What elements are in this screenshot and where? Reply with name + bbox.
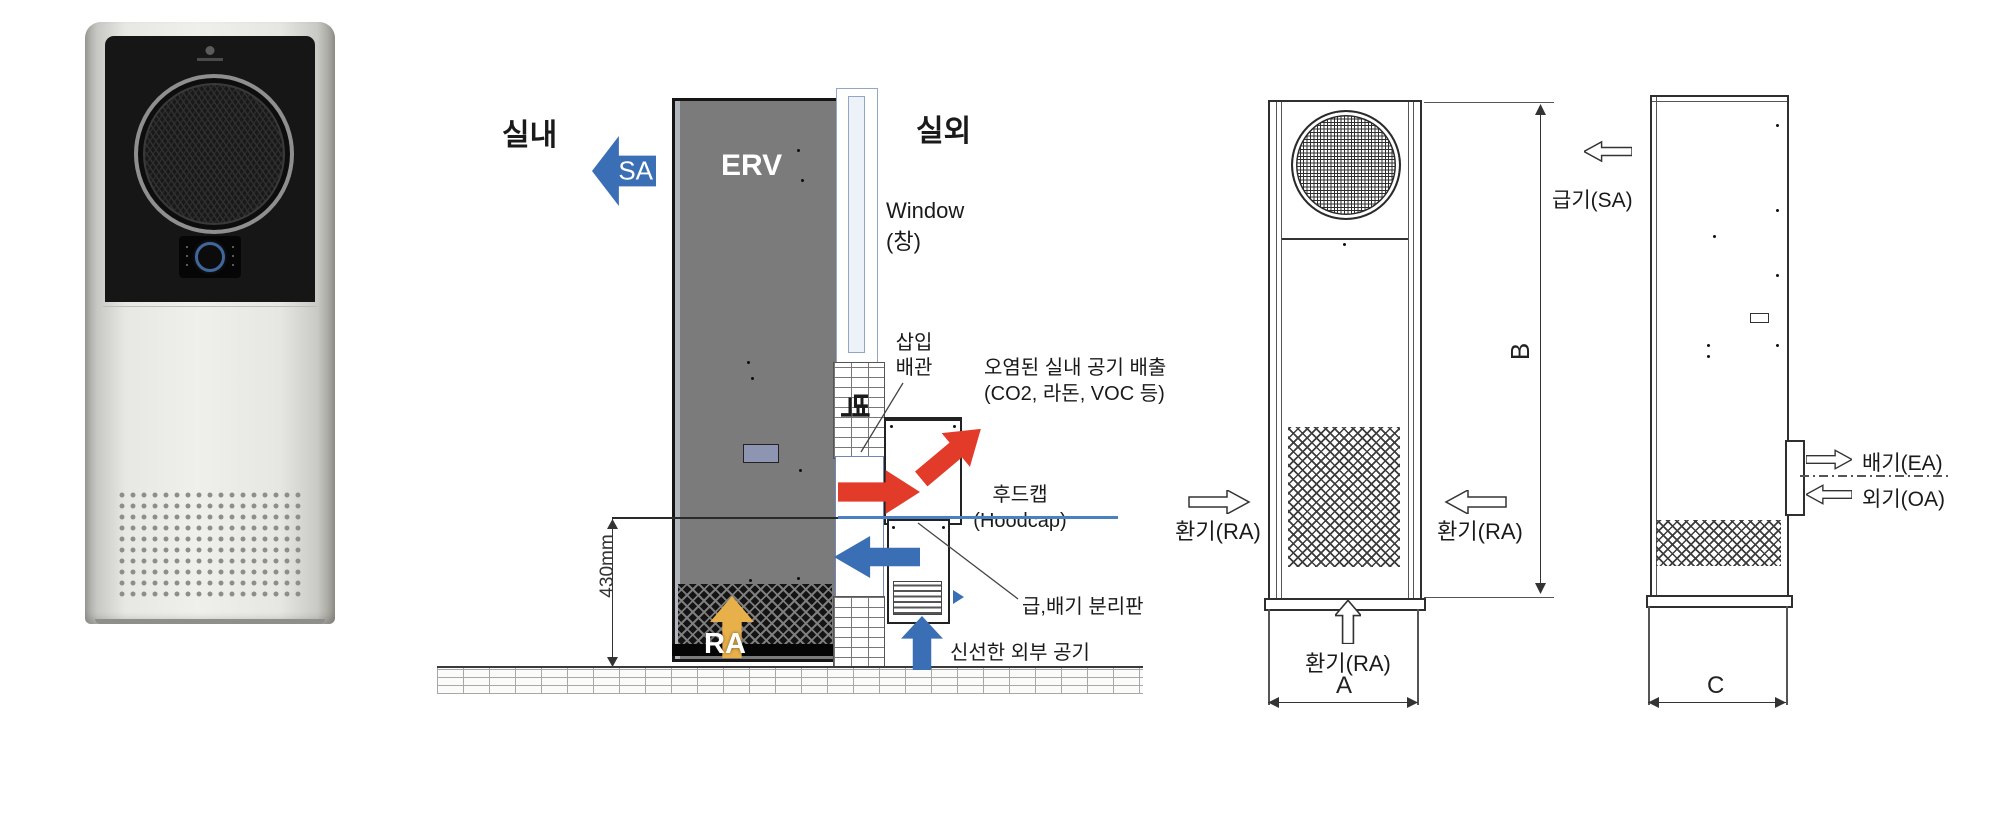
sv-dot-6: [1707, 355, 1710, 358]
sa-side-label: 급기(SA): [1552, 184, 1633, 214]
front-view-unit: [1268, 100, 1422, 602]
dim-c-arrow-left-icon: [1648, 697, 1659, 708]
exhaust-arrow-horizontal: [838, 470, 920, 514]
intake-tick-icon: [953, 590, 964, 604]
fv-screw-dot: [1343, 243, 1346, 246]
hoodcap-label-line2: (Hoodcap): [968, 508, 1072, 534]
outdoor-label: 실외: [916, 106, 971, 150]
ra-right-label: 환기(RA): [1430, 514, 1530, 546]
intake-arrow-left: [834, 536, 920, 578]
hood-intake-grille: [893, 581, 942, 615]
exhaust-note-line1: 오염된 실내 공기 배출: [984, 355, 1166, 381]
return-air-arrow-label: RA: [704, 628, 746, 661]
window-label-en: Window: [886, 198, 964, 224]
erv-left-trim: [675, 101, 680, 659]
dim-b-line: [1540, 106, 1541, 592]
dim-b-label: B: [1505, 343, 1536, 360]
dim-c-arrow-right-icon: [1775, 697, 1786, 708]
side-view-unit: [1650, 95, 1789, 599]
wall-brick-lower: [833, 596, 885, 669]
window-label-kr: (창): [886, 224, 964, 256]
fresh-air-arrow-up: [901, 616, 943, 670]
fv-channel-l2: [1281, 102, 1282, 600]
sv-dot-7: [1776, 344, 1779, 347]
floor: [437, 666, 1143, 694]
ea-label: 배기(EA): [1862, 447, 1943, 477]
insert-pipe-label: 삽입 배관: [886, 331, 942, 381]
hoodcap-label: 후드캡 (Hoodcap): [968, 482, 1072, 534]
oa-arrow-icon: [1806, 483, 1852, 506]
sv-dot-2: [1776, 209, 1779, 212]
dim-b-ext-top: [1424, 102, 1554, 103]
erv-base: [672, 644, 838, 656]
fv-channel-r1: [1413, 102, 1414, 600]
insert-pipe-label-line2: 배관: [886, 356, 942, 381]
sv-dot-1: [1776, 124, 1779, 127]
intake-perforation-grille: [117, 490, 303, 602]
window-frame: [836, 88, 878, 366]
control-dial-icon: [195, 242, 225, 272]
insert-pipe-label-line1: 삽입: [886, 331, 942, 356]
side-view-base: [1646, 595, 1793, 608]
ra-bottom-arrow-icon: [1335, 600, 1361, 644]
sa-side-arrow-icon: [1584, 138, 1632, 165]
erv-slot: [743, 444, 779, 463]
exhaust-arrow-horizontal-icon: [838, 470, 920, 514]
dim-c-line: [1648, 702, 1786, 703]
product-photo: [85, 22, 335, 624]
fv-divider: [1282, 238, 1408, 240]
dim-430-label: 430mm: [597, 526, 619, 606]
fresh-air-label: 신선한 외부 공기: [950, 636, 1090, 665]
hood-screw-1: [890, 425, 893, 428]
window-pane: [848, 96, 865, 353]
erv-label: ERV: [721, 149, 782, 183]
sv-slot: [1750, 313, 1769, 323]
fresh-air-arrow-up-icon: [901, 616, 943, 670]
dim-a-arrow-left-icon: [1268, 697, 1279, 708]
erv-screw-dots: [797, 149, 800, 152]
control-dots-left-icon: [186, 246, 188, 248]
intake-arrow-left-icon: [834, 536, 920, 578]
body-seam: [103, 306, 317, 307]
separator-label: 급,배기 분리판: [1022, 590, 1144, 619]
dim-b-arrow-top-icon: [1535, 104, 1546, 115]
erv-unit: ERV: [672, 98, 844, 662]
front-fan-grille: [1291, 110, 1401, 220]
hoodcap-label-line1: 후드캡: [968, 482, 1072, 508]
ra-bottom-label: 환기(RA): [1298, 646, 1398, 678]
sv-pedestal-right: [1786, 606, 1788, 705]
front-intake-grille: [1288, 427, 1400, 567]
sv-dot-4: [1776, 274, 1779, 277]
brand-logo-text-mark: [197, 58, 223, 61]
sv-top-line: [1652, 101, 1787, 102]
erv-filter-band: [678, 584, 832, 644]
erv-430-seam-line: [612, 517, 838, 519]
dim-a-line: [1268, 702, 1418, 703]
side-duct-connector: [1785, 440, 1805, 516]
exhaust-note-label: 오염된 실내 공기 배출 (CO2, 라돈, VOC 등): [984, 355, 1166, 407]
control-dots-right-icon: [232, 246, 234, 248]
fv-pedestal-left: [1268, 609, 1270, 705]
ea-arrow-icon: [1806, 448, 1852, 471]
ra-left-label: 환기(RA): [1168, 514, 1268, 546]
sv-pedestal-left: [1648, 606, 1650, 705]
product-top-panel: [105, 36, 315, 302]
ra-right-arrow-icon: [1437, 490, 1515, 514]
photo-base-shadow: [95, 619, 325, 624]
supply-air-arrow-label: SA: [618, 156, 653, 187]
fv-pedestal-right: [1417, 609, 1419, 705]
dim-c-label: C: [1707, 672, 1724, 700]
hood-separator-line: [838, 516, 1118, 519]
side-intake-grille: [1656, 520, 1781, 566]
indoor-label: 실내: [502, 110, 557, 154]
exhaust-note-line2: (CO2, 라돈, VOC 등): [984, 381, 1166, 407]
fv-channel-r2: [1408, 102, 1409, 600]
sv-dot-5: [1707, 344, 1710, 347]
oa-label: 외기(OA): [1862, 483, 1945, 513]
supply-air-arrow: SA: [592, 136, 656, 206]
fv-channel-l1: [1276, 102, 1277, 600]
erv-installation-diagram: 실내 실외 SA ERV RA 430mm Window (창) 벽: [0, 0, 2008, 824]
dim-b-ext-bottom: [1424, 597, 1554, 598]
hood-screw-4: [892, 526, 895, 529]
window-label: Window (창): [886, 198, 964, 256]
dim-b-arrow-bottom-icon: [1535, 583, 1546, 594]
brand-logo-icon: [206, 46, 215, 55]
ea-oa-divider-line: [1800, 475, 1948, 477]
hood-screw-5: [942, 526, 945, 529]
ra-left-arrow-icon: [1180, 490, 1258, 514]
sv-dot-3: [1713, 235, 1716, 238]
fan-grille-photo: [134, 74, 294, 234]
wall-label: 벽: [835, 392, 879, 420]
control-display: [179, 236, 241, 278]
